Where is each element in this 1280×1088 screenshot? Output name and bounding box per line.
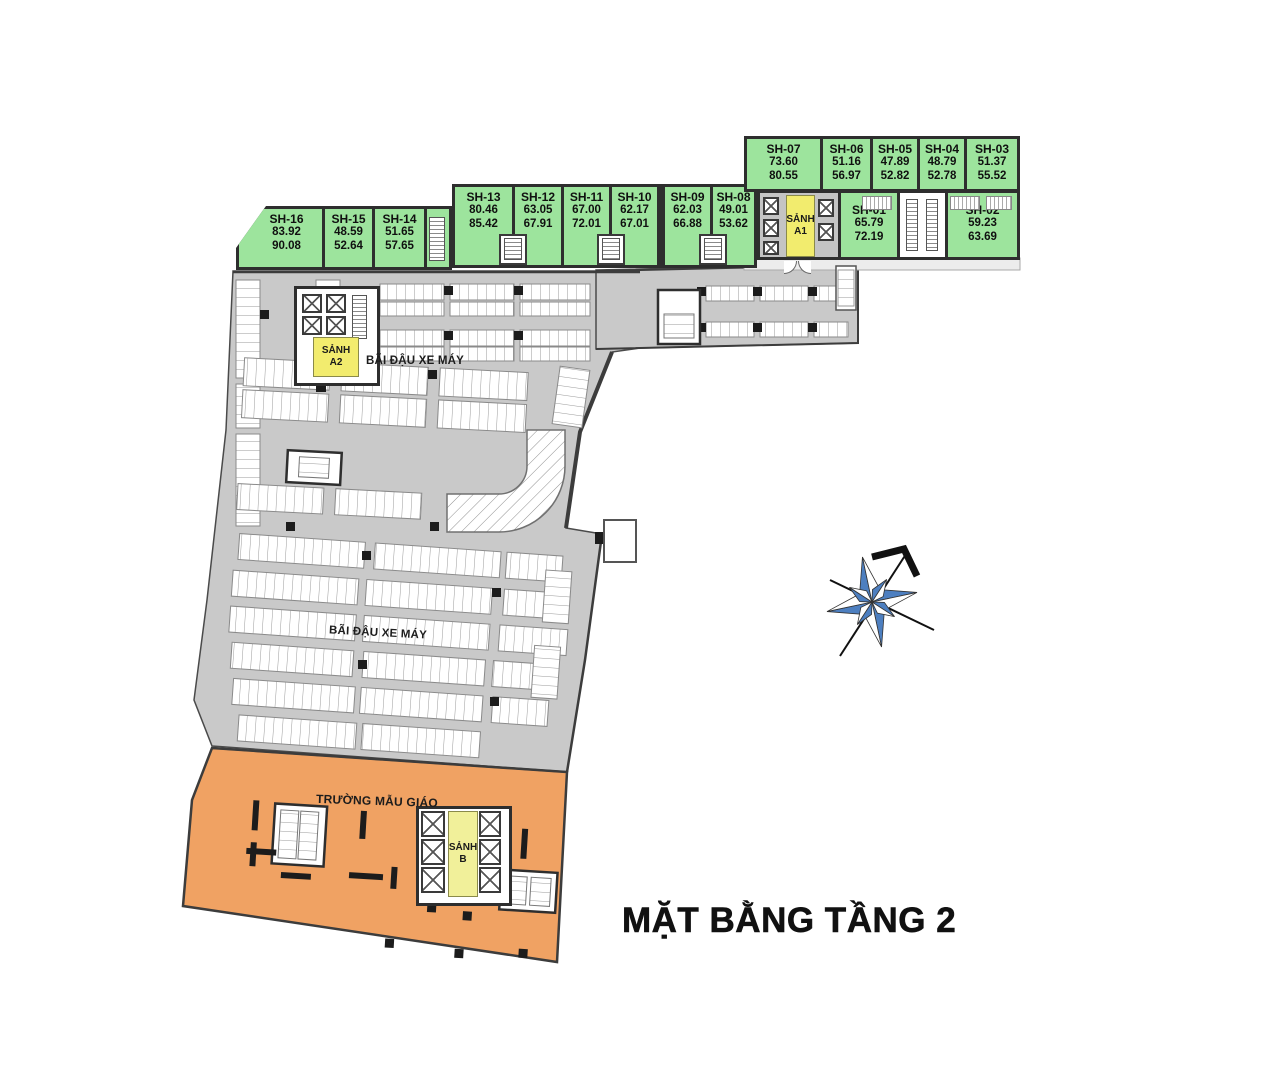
elevator-icon xyxy=(302,294,322,313)
lobby-label: SẢNH xyxy=(786,214,814,226)
unit-sh-06[interactable]: SH-06 51.16 56.97 xyxy=(823,139,870,189)
unit-area-1: 62.03 xyxy=(665,204,710,218)
unit-id: SH-13 xyxy=(455,190,512,204)
unit-id: SH-10 xyxy=(612,190,657,204)
core-a2: SẢNH A2 xyxy=(294,286,380,386)
ledge xyxy=(862,196,892,210)
unit-area-1: 65.79 xyxy=(841,217,897,231)
elevator-icon xyxy=(302,316,322,335)
unit-id: SH-04 xyxy=(920,142,964,156)
unit-area-1: 59.23 xyxy=(948,217,1017,231)
elevator-icon xyxy=(763,219,779,237)
unit-area-2: 66.88 xyxy=(665,218,710,232)
lobby-code: A2 xyxy=(330,357,343,369)
unit-area-2: 56.97 xyxy=(823,170,870,184)
unit-id: SH-09 xyxy=(665,190,710,204)
lobby-code: B xyxy=(459,854,466,866)
unit-sh-07[interactable]: SH-07 73.60 80.55 xyxy=(747,139,820,189)
unit-id: SH-05 xyxy=(873,142,917,156)
unit-area-2: 85.42 xyxy=(455,218,512,232)
floor-plan: SH-16 83.92 90.08 SH-15 48.59 52.64 SH-1… xyxy=(0,0,1280,1088)
stairs-icon xyxy=(352,295,367,339)
unit-id: SH-08 xyxy=(713,190,754,204)
unit-area-1: 83.92 xyxy=(251,226,322,240)
unit-area-1: 48.59 xyxy=(325,226,372,240)
unit-area-1: 51.37 xyxy=(967,156,1017,170)
unit-area-2: 63.69 xyxy=(948,231,1017,245)
unit-id: SH-14 xyxy=(375,212,424,226)
stairs-icon xyxy=(926,199,938,251)
lobby-a2: SẢNH A2 xyxy=(313,337,359,377)
unit-sh-14[interactable]: SH-14 51.65 57.65 xyxy=(375,209,424,267)
unit-area-1: 51.65 xyxy=(375,226,424,240)
lobby-label: SẢNH xyxy=(322,345,350,357)
elevator-icon xyxy=(326,294,346,313)
elevator-icon xyxy=(479,811,501,837)
elevator-icon xyxy=(479,839,501,865)
unit-sh-04[interactable]: SH-04 48.79 52.78 xyxy=(920,139,964,189)
elevator-icon xyxy=(818,223,834,241)
stair-core xyxy=(900,193,945,257)
unit-id: SH-16 xyxy=(251,212,322,226)
unit-area-1: 48.79 xyxy=(920,156,964,170)
stairs-icon xyxy=(906,199,918,251)
lobby-code: A1 xyxy=(794,226,807,238)
compass-rose xyxy=(817,547,934,656)
lobby-b: SẢNH B xyxy=(448,811,478,897)
unit-id: SH-11 xyxy=(564,190,609,204)
unit-area-2: 52.82 xyxy=(873,170,917,184)
unit-area-2: 90.08 xyxy=(251,240,322,254)
unit-area-1: 51.16 xyxy=(823,156,870,170)
page-title: MẶT BẰNG TẦNG 2 xyxy=(622,901,956,941)
stairs-icon xyxy=(429,217,445,261)
unit-area-1: 49.01 xyxy=(713,204,754,218)
unit-id: SH-03 xyxy=(967,142,1017,156)
parking-label-1: BÃI ĐẬU XE MÁY xyxy=(355,355,475,367)
stairs-icon xyxy=(597,234,625,265)
core-b: SẢNH B xyxy=(416,806,512,906)
ledge xyxy=(950,196,980,210)
elevator-icon xyxy=(421,839,445,865)
elevator-icon xyxy=(479,867,501,893)
elevator-icon xyxy=(763,241,779,255)
unit-area-2: 80.55 xyxy=(747,170,820,184)
unit-area-1: 67.00 xyxy=(564,204,609,218)
lobby-a1: SẢNH A1 xyxy=(786,195,815,257)
unit-sh-05[interactable]: SH-05 47.89 52.82 xyxy=(873,139,917,189)
unit-sh-03[interactable]: SH-03 51.37 55.52 xyxy=(967,139,1017,189)
unit-area-2: 72.01 xyxy=(564,218,609,232)
elevator-icon xyxy=(421,811,445,837)
unit-area-2: 52.64 xyxy=(325,240,372,254)
unit-area-1: 73.60 xyxy=(747,156,820,170)
unit-id: SH-06 xyxy=(823,142,870,156)
stairs-icon xyxy=(499,234,527,265)
unit-area-2: 57.65 xyxy=(375,240,424,254)
lobby-label: SẢNH xyxy=(449,842,477,854)
wing-sh03-07-upper: SH-07 73.60 80.55 SH-06 51.16 56.97 SH-0… xyxy=(744,136,1020,192)
unit-area-2: 67.01 xyxy=(612,218,657,232)
unit-sh-15[interactable]: SH-15 48.59 52.64 xyxy=(325,209,372,267)
unit-area-1: 80.46 xyxy=(455,204,512,218)
stair-bay xyxy=(427,209,449,267)
elevator-icon xyxy=(763,197,779,215)
wing-sh14-16: SH-16 83.92 90.08 SH-15 48.59 52.64 SH-1… xyxy=(236,206,452,270)
unit-id: SH-12 xyxy=(515,190,561,204)
unit-area-1: 63.05 xyxy=(515,204,561,218)
unit-area-1: 62.17 xyxy=(612,204,657,218)
unit-area-2: 72.19 xyxy=(841,231,897,245)
elevator-icon xyxy=(421,867,445,893)
unit-area-1: 47.89 xyxy=(873,156,917,170)
unit-area-2: 67.91 xyxy=(515,218,561,232)
stairs-icon xyxy=(699,234,727,265)
elevator-icon xyxy=(818,199,834,217)
unit-area-2: 52.78 xyxy=(920,170,964,184)
ledge xyxy=(986,196,1012,210)
elevator-icon xyxy=(326,316,346,335)
unit-id: SH-07 xyxy=(747,142,820,156)
unit-area-2: 53.62 xyxy=(713,218,754,232)
unit-id: SH-15 xyxy=(325,212,372,226)
wing-sh08-13: SH-13 80.46 85.42 SH-12 63.05 67.91 SH-1… xyxy=(452,184,757,268)
unit-area-2: 55.52 xyxy=(967,170,1017,184)
core-a1: SẢNH A1 xyxy=(760,193,838,257)
